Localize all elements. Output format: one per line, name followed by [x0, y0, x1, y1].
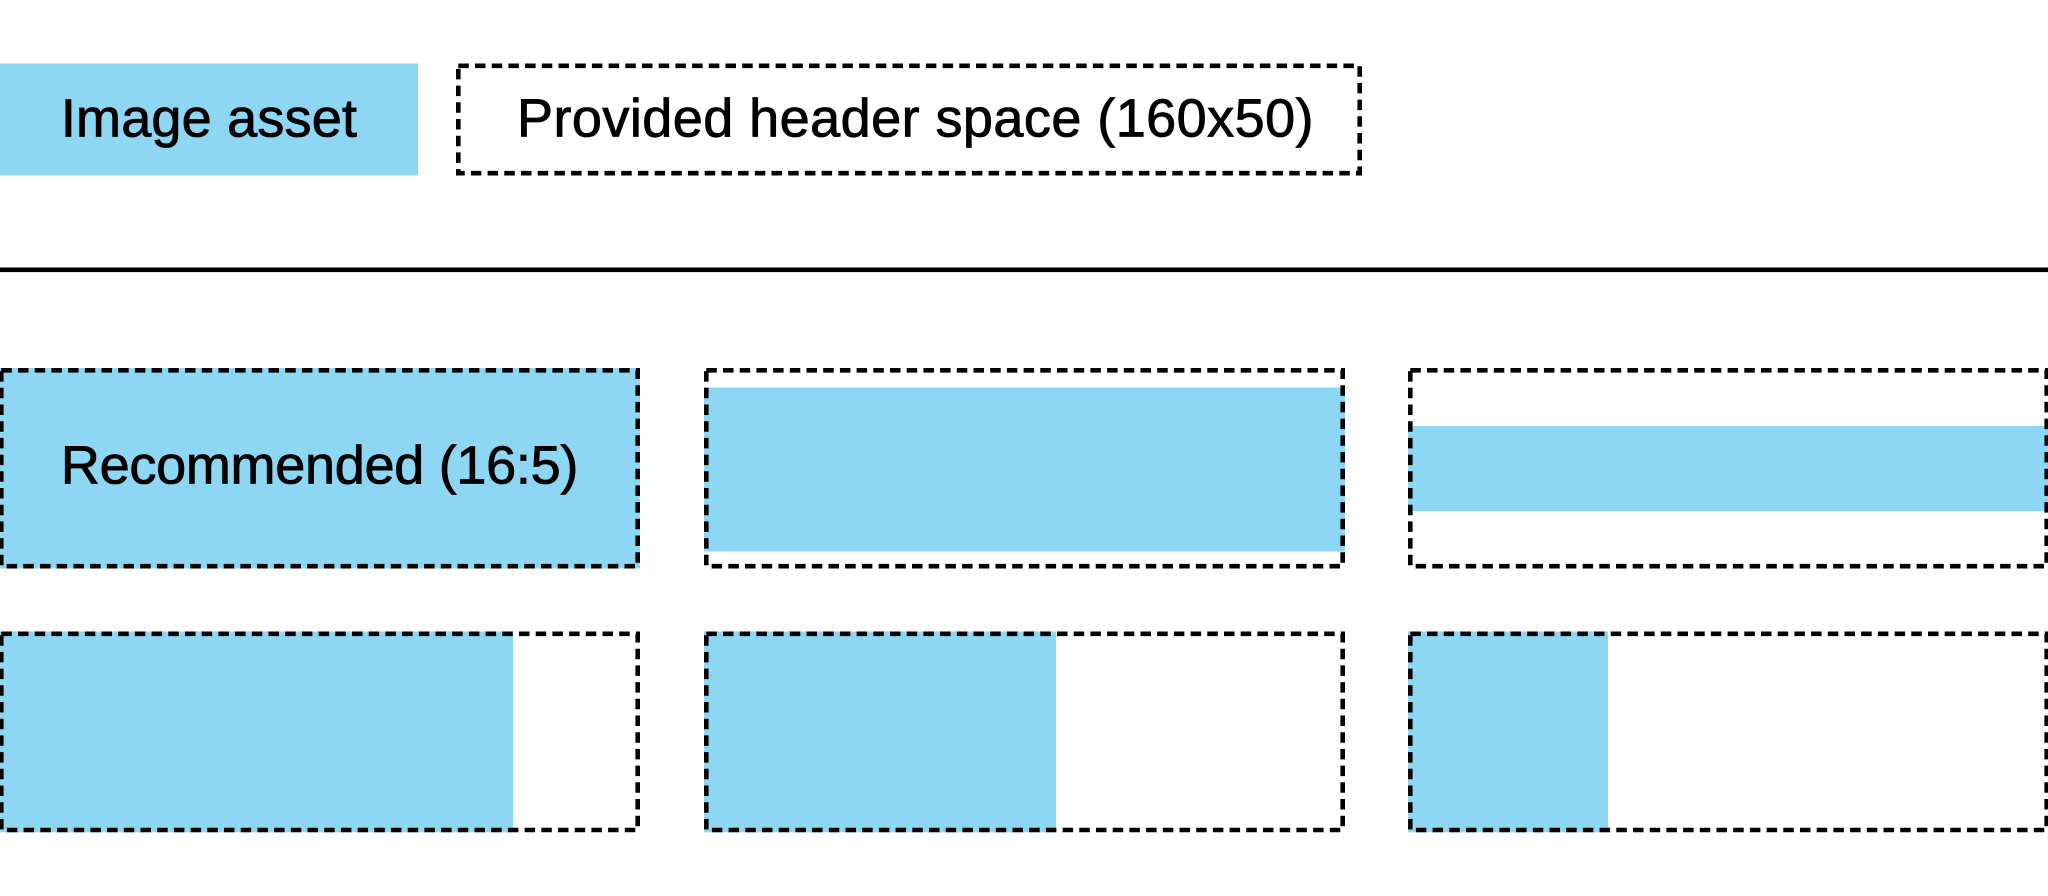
svg-text:Image asset: Image asset	[61, 88, 357, 148]
svg-text:Recommended (16:5): Recommended (16:5)	[61, 436, 578, 496]
svg-text:Provided header space (160x50): Provided header space (160x50)	[517, 88, 1314, 148]
